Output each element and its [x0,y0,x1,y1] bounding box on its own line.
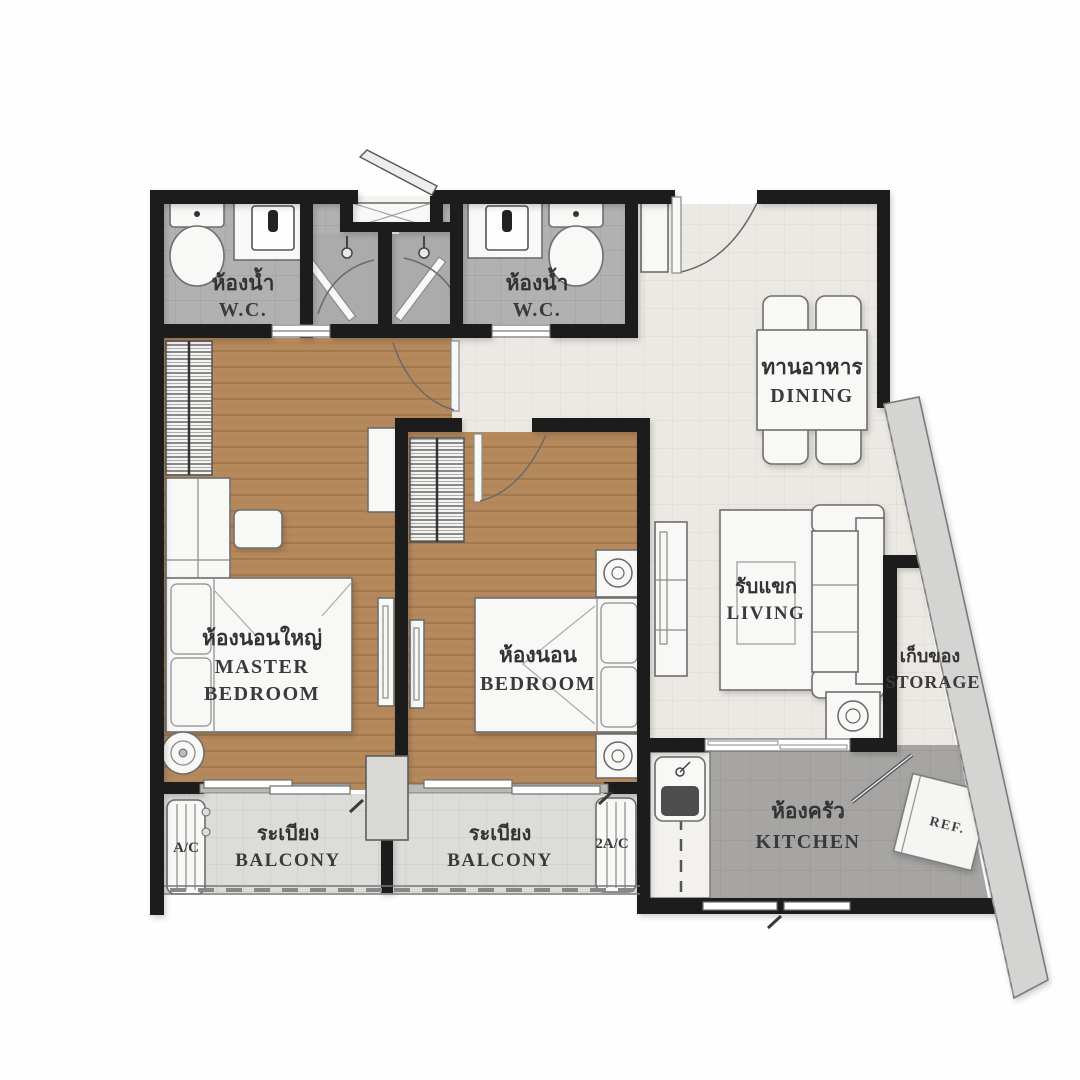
label-living-th: รับแขก [735,576,797,598]
ac-1-label: A/C [173,840,199,856]
label-dining-en: DINING [770,385,853,407]
sink-2-icon [468,198,542,258]
pillow [601,667,637,727]
bath-1-sliding-door [272,325,330,337]
living-lamp-table [826,692,880,740]
floor-plan-page: REF. A/C 2A/C [0,0,1080,1080]
label-wc1-en: W.C. [219,299,268,321]
label-wc2-en: W.C. [513,299,562,321]
label-bedroom-th: ห้องนอน [499,643,578,667]
label-kitchen-th: ห้องครัว [771,799,845,823]
bedroom-wardrobe-icon [410,438,464,542]
dining-table [757,330,867,430]
label-wc1-th: ห้องน้ำ [212,267,275,295]
entry-cabinet [641,202,668,272]
label-dining-th: ทานอาหาร [761,356,863,379]
bedroom-nightstand-top [596,550,641,597]
master-desk-panel [378,598,394,706]
master-headboard-cabinet [368,428,398,512]
hall-shelf-cabinet [655,522,687,676]
bedroom-nightstand-bottom [596,734,641,778]
kitchen-window [784,902,850,910]
label-master-en1: MASTER [215,656,310,678]
label-balcony1-th: ระเบียง [257,822,320,845]
bedroom-desk-panel [410,620,424,708]
ac-2-label: 2A/C [595,836,628,852]
label-storage-en: STORAGE [886,672,981,692]
kitchen-sliding-door [705,739,850,751]
ac-unit-1: A/C [167,800,210,894]
pillow [601,603,637,663]
ac-unit-2: 2A/C [595,798,636,892]
master-stool [234,510,282,548]
fan-icon [162,732,204,774]
master-bed [166,578,352,732]
label-balcony2-th: ระเบียง [469,822,532,845]
label-master-en2: BEDROOM [204,683,320,705]
label-storage-th: เก็บของ [900,644,960,666]
label-living-en: LIVING [727,603,806,624]
label-wc2-th: ห้องน้ำ [506,267,569,295]
label-bedroom-en: BEDROOM [480,673,596,695]
master-wardrobe-icon [166,341,212,475]
balcony-pillar [366,756,408,840]
sink-1-icon [234,198,310,260]
floor-plan-svg: REF. A/C 2A/C [0,0,1080,1080]
bath-2-sliding-door [492,325,550,337]
sofa [812,505,884,698]
label-master-th: ห้องนอนใหญ่ [202,625,322,651]
label-balcony2-en: BALCONY [447,850,553,871]
label-balcony1-en: BALCONY [235,850,341,871]
service-door [360,150,437,195]
living-rug [720,510,816,690]
label-kitchen-en: KITCHEN [756,831,861,853]
kitchen-counter [650,752,710,898]
kitchen-window [703,902,777,910]
